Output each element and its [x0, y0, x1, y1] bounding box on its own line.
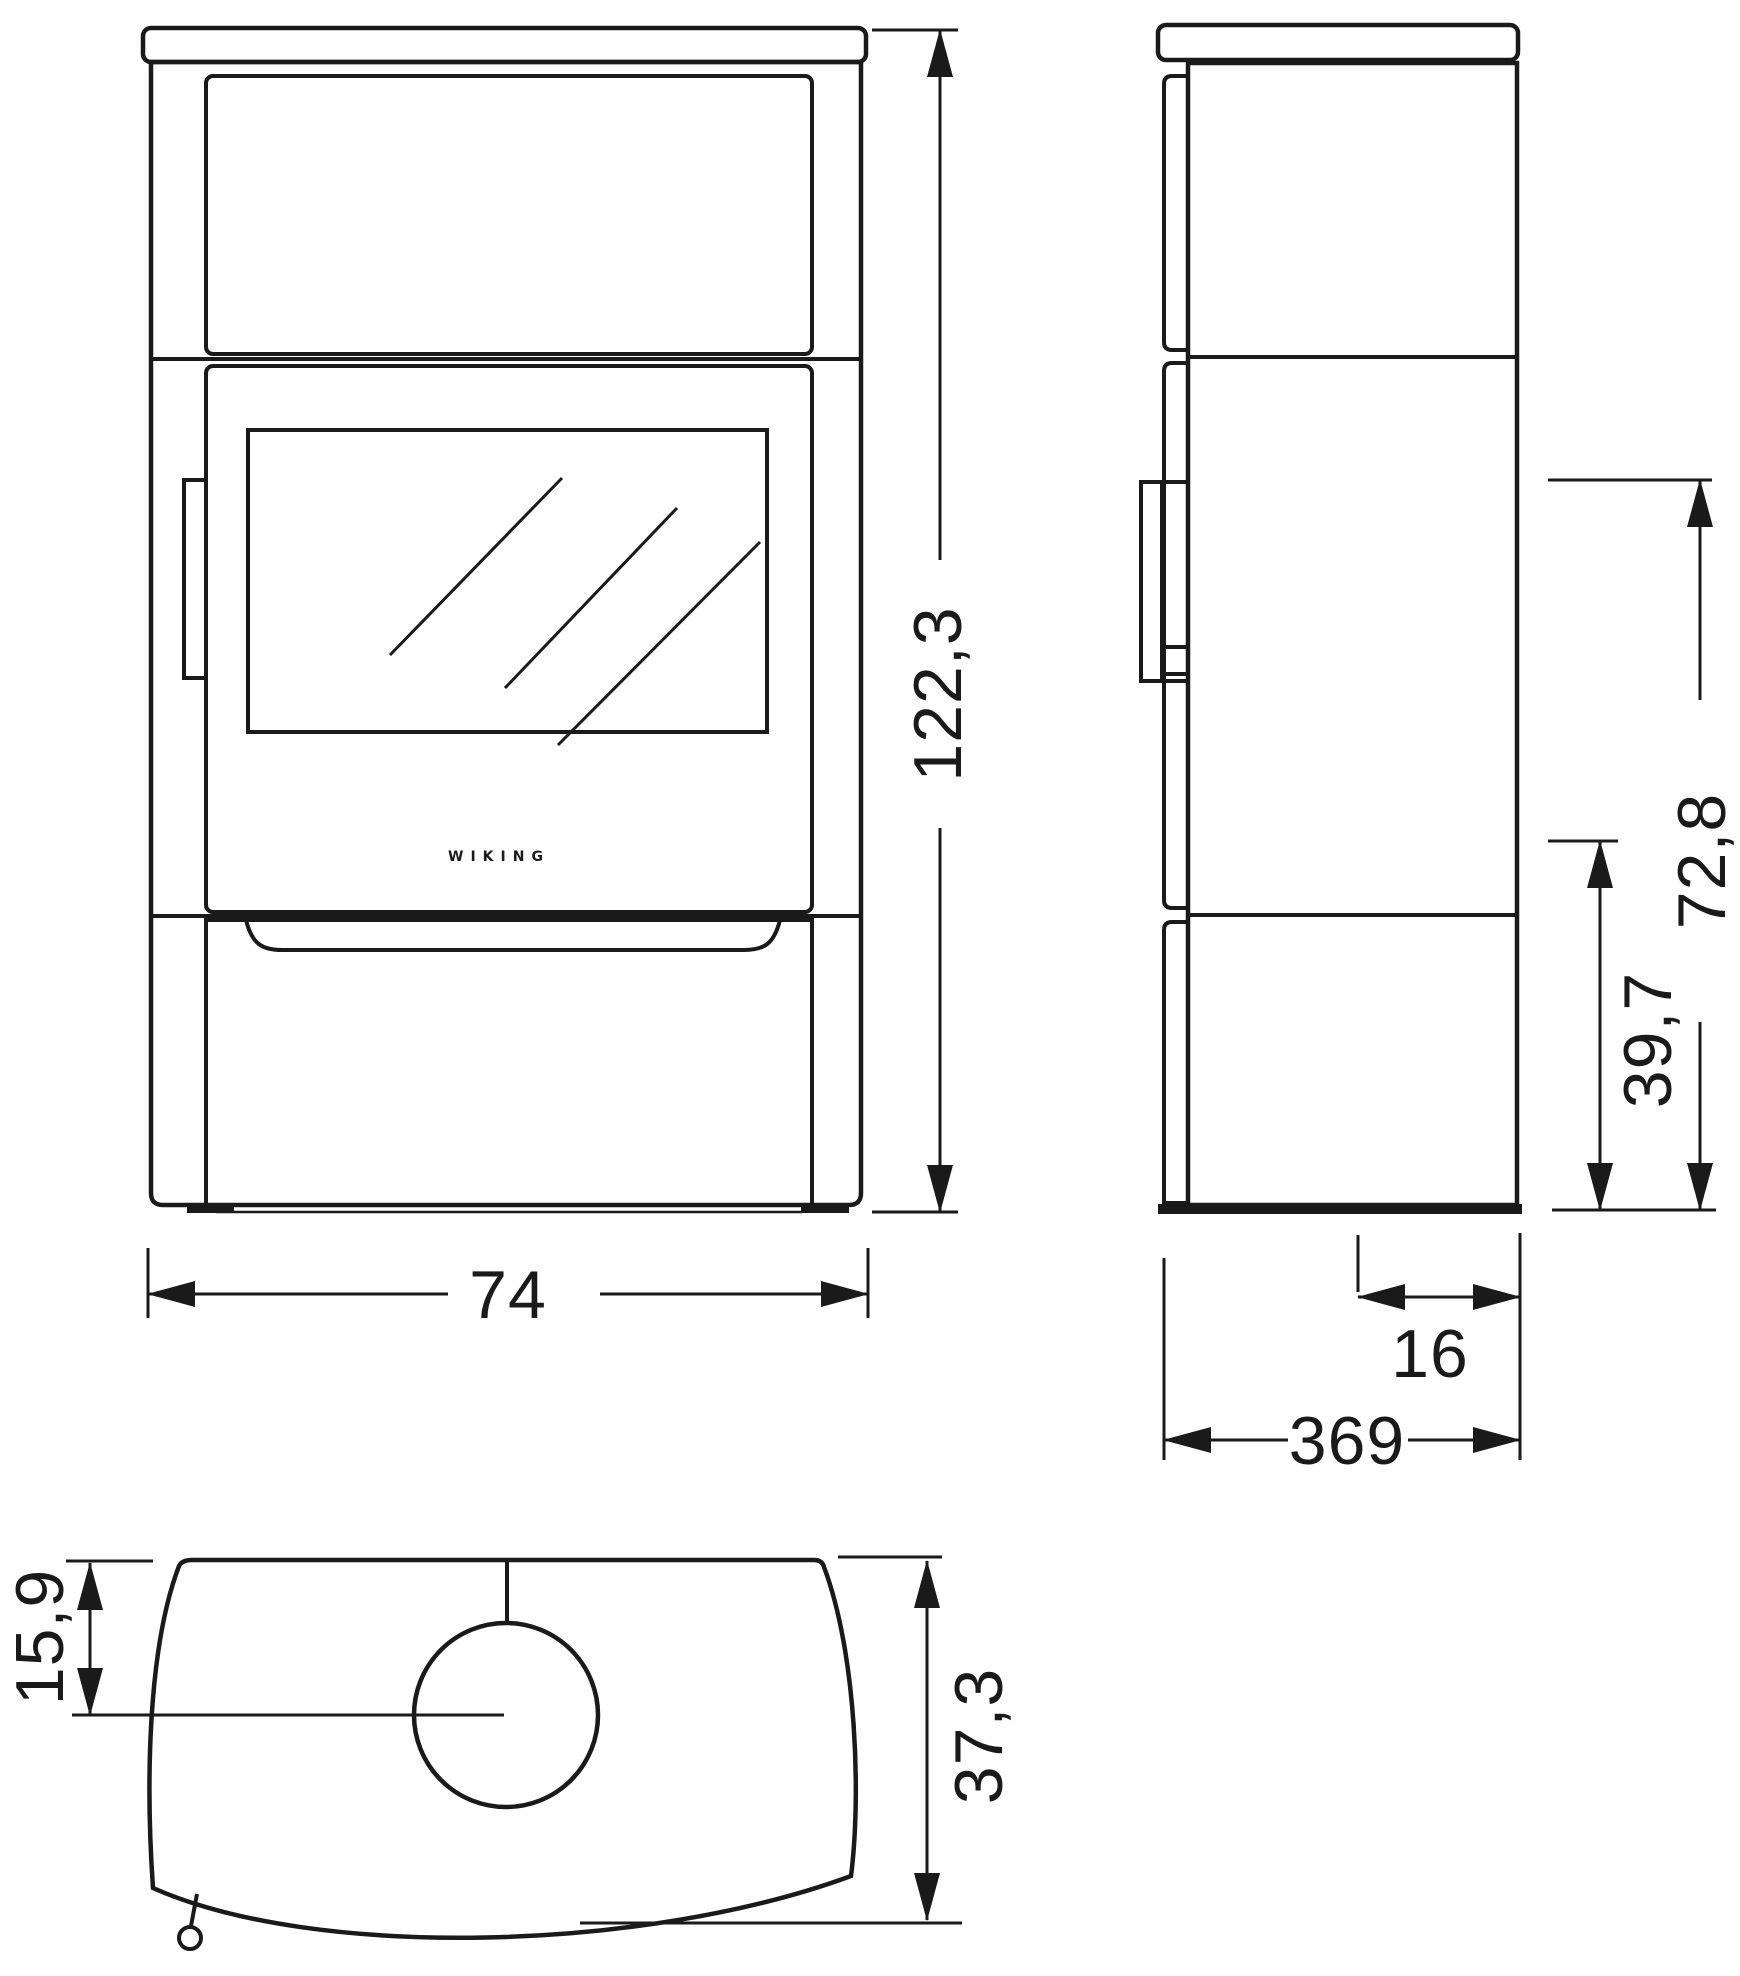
top-plate-outline — [149, 1560, 855, 1938]
dim-front-height-label: 122,3 — [900, 606, 976, 781]
stove-technical-drawing: WIKING 122,3 — [0, 0, 1740, 1976]
side-front-strip-base — [1164, 922, 1188, 1203]
glass-reflection-3 — [558, 542, 760, 745]
brand-logo-text: WIKING — [448, 849, 550, 865]
side-front-strip-door — [1164, 363, 1188, 908]
dim-side-depth-label: 369 — [1289, 1403, 1405, 1479]
dim-front-width-label: 74 — [469, 1257, 547, 1333]
dim-front-width: 74 — [148, 1248, 868, 1333]
glass-reflection-1 — [390, 478, 562, 655]
side-view — [1141, 25, 1522, 1214]
dim-top-depth: 37,3 — [580, 1557, 1017, 1923]
side-top-plate — [1158, 25, 1518, 60]
side-body — [1188, 63, 1517, 1205]
dim-front-height: 122,3 — [872, 30, 976, 1212]
drawer-handle-recess — [246, 920, 780, 950]
top-view — [72, 1560, 856, 1949]
glass-reflection-2 — [505, 508, 677, 688]
damper-pull-ring — [179, 1927, 201, 1949]
front-drawer-panel — [206, 920, 812, 1205]
dim-top-depth-label: 37,3 — [941, 1668, 1017, 1804]
dim-side-flue-label: 16 — [1391, 1316, 1469, 1392]
front-top-panel — [206, 76, 812, 354]
dim-top-flue-offset: 15,9 — [2, 1561, 153, 1715]
dim-side-upper-label: 72,8 — [1664, 793, 1740, 929]
front-foot-right — [801, 1203, 849, 1213]
front-door-panel — [206, 366, 812, 912]
front-body — [151, 62, 861, 1205]
damper-pull-cord — [191, 1894, 197, 1926]
front-top-plate — [143, 28, 866, 62]
drawing-page: WIKING 122,3 — [0, 0, 1740, 1976]
door-handle-front — [184, 480, 206, 678]
front-view: WIKING — [143, 28, 866, 1213]
dim-top-flue-label: 15,9 — [2, 1569, 78, 1705]
dim-side-lower-label: 39,7 — [1610, 972, 1686, 1108]
side-base-slab — [1158, 1204, 1522, 1214]
side-front-strip-top — [1164, 76, 1188, 350]
